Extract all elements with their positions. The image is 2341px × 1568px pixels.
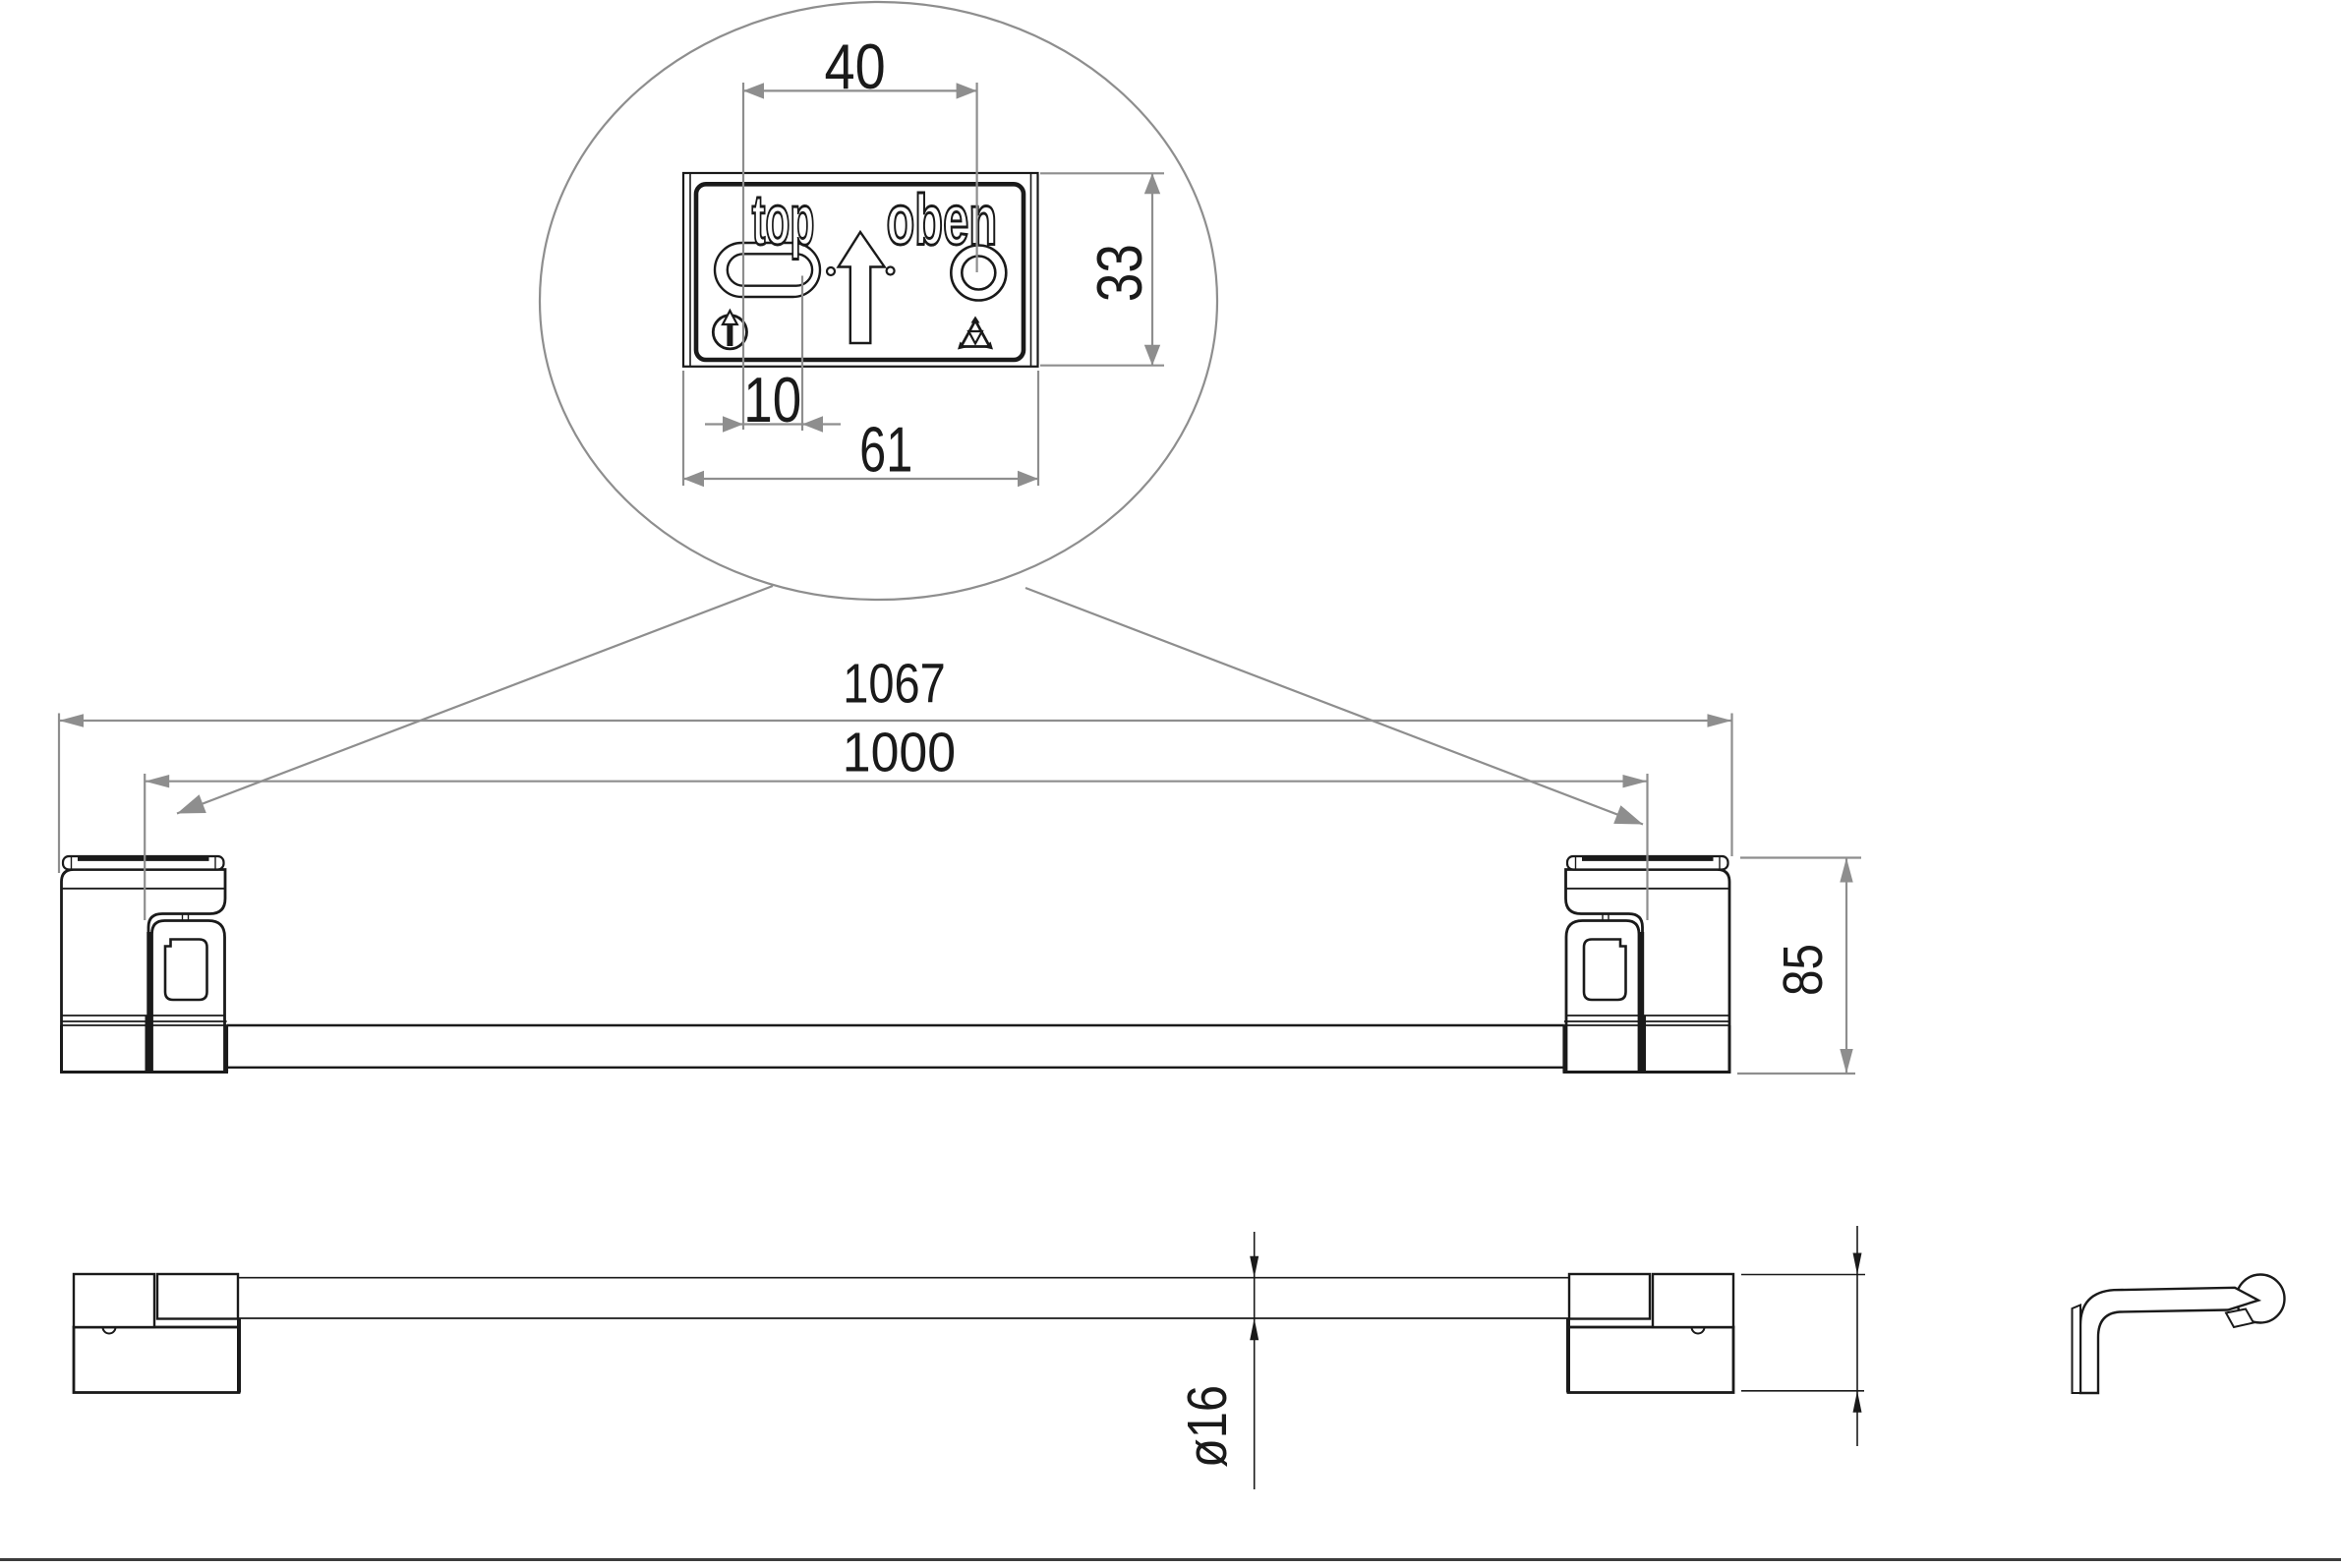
svg-text:33: 33: [1083, 244, 1155, 302]
svg-text:oben: oben: [886, 180, 997, 259]
svg-text:10: 10: [743, 364, 801, 436]
svg-text:40: 40: [825, 30, 886, 102]
svg-text:ø16: ø16: [1176, 1385, 1239, 1468]
svg-text:85: 85: [1772, 944, 1835, 996]
svg-text:1067: 1067: [843, 653, 946, 716]
svg-text:top: top: [752, 182, 815, 261]
svg-text:1000: 1000: [843, 721, 956, 784]
svg-text:61: 61: [859, 414, 912, 486]
